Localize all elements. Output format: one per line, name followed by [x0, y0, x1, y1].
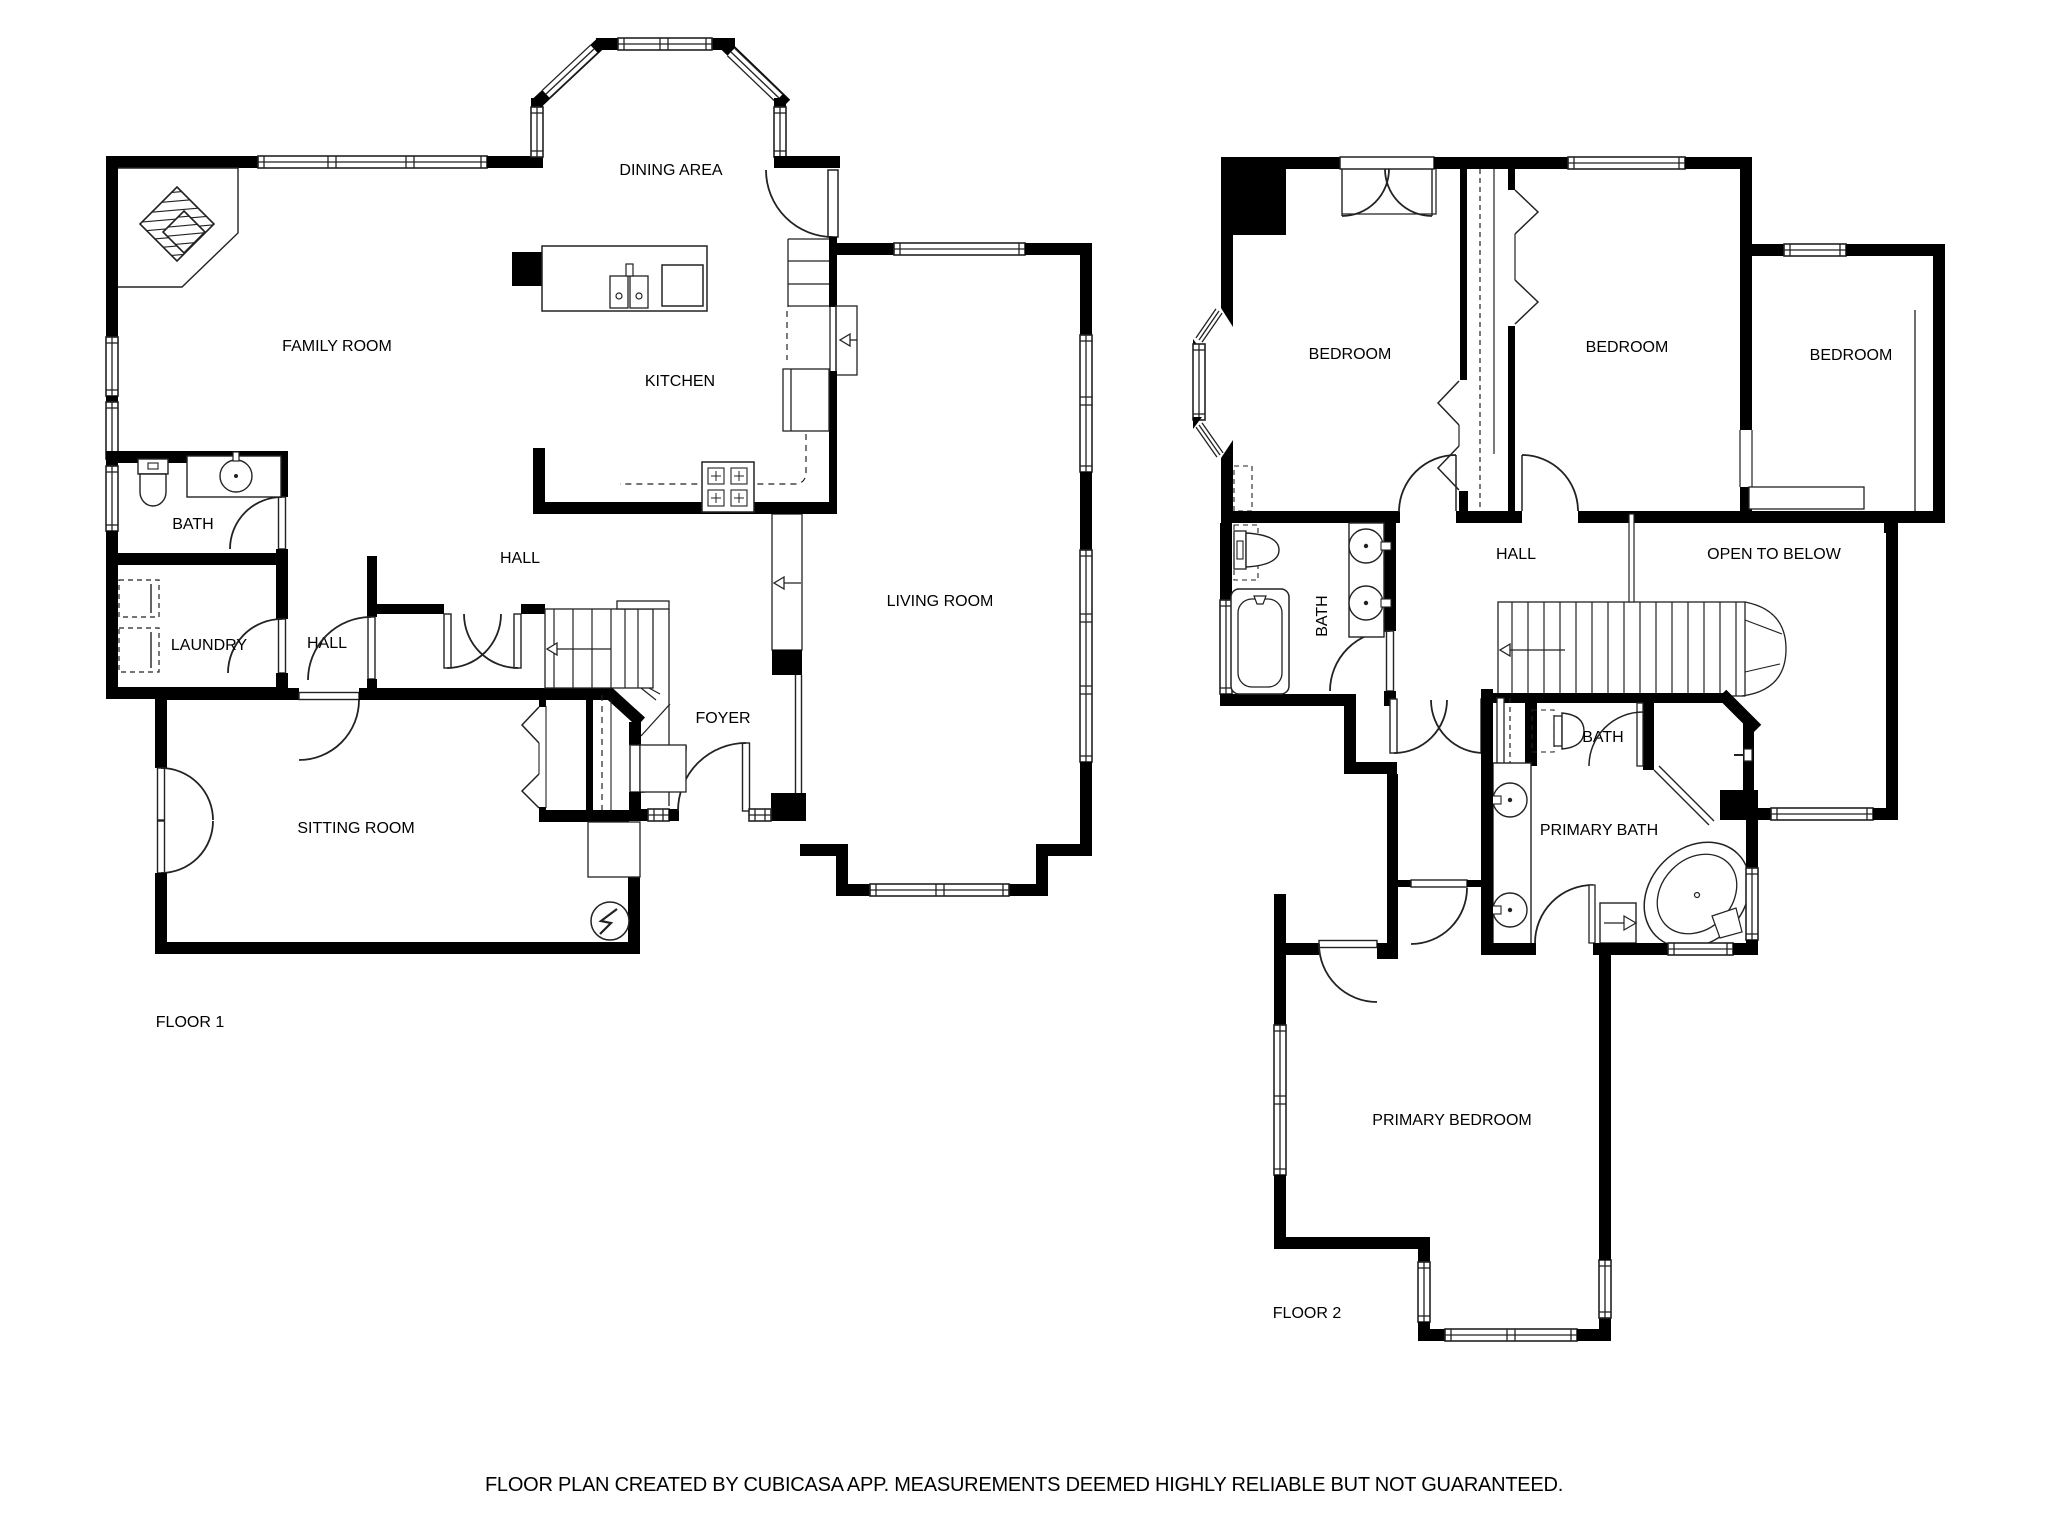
svg-text:PRIMARY BEDROOM: PRIMARY BEDROOM	[1372, 1112, 1531, 1129]
svg-text:FAMILY ROOM: FAMILY ROOM	[282, 338, 392, 355]
svg-text:KITCHEN: KITCHEN	[645, 373, 715, 390]
svg-text:OPEN TO BELOW: OPEN TO BELOW	[1707, 546, 1842, 563]
svg-text:FOYER: FOYER	[695, 710, 750, 727]
svg-text:LAUNDRY: LAUNDRY	[171, 637, 248, 654]
svg-text:BEDROOM: BEDROOM	[1309, 346, 1392, 363]
svg-text:FLOOR 1: FLOOR 1	[156, 1014, 225, 1031]
svg-text:BATH: BATH	[1314, 595, 1331, 636]
svg-text:BATH: BATH	[1582, 729, 1623, 746]
svg-text:FLOOR 2: FLOOR 2	[1273, 1305, 1342, 1322]
svg-text:PRIMARY BATH: PRIMARY BATH	[1540, 822, 1658, 839]
svg-text:BEDROOM: BEDROOM	[1586, 339, 1669, 356]
svg-text:DINING AREA: DINING AREA	[619, 162, 722, 179]
svg-text:HALL: HALL	[1496, 546, 1536, 563]
svg-text:FLOOR PLAN CREATED BY CUBICASA: FLOOR PLAN CREATED BY CUBICASA APP. MEAS…	[485, 1474, 1563, 1496]
svg-text:LIVING ROOM: LIVING ROOM	[887, 593, 994, 610]
svg-text:BATH: BATH	[172, 516, 213, 533]
svg-text:SITTING ROOM: SITTING ROOM	[297, 820, 414, 837]
svg-text:HALL: HALL	[500, 550, 540, 567]
svg-text:BEDROOM: BEDROOM	[1810, 347, 1893, 364]
svg-text:HALL: HALL	[307, 635, 347, 652]
